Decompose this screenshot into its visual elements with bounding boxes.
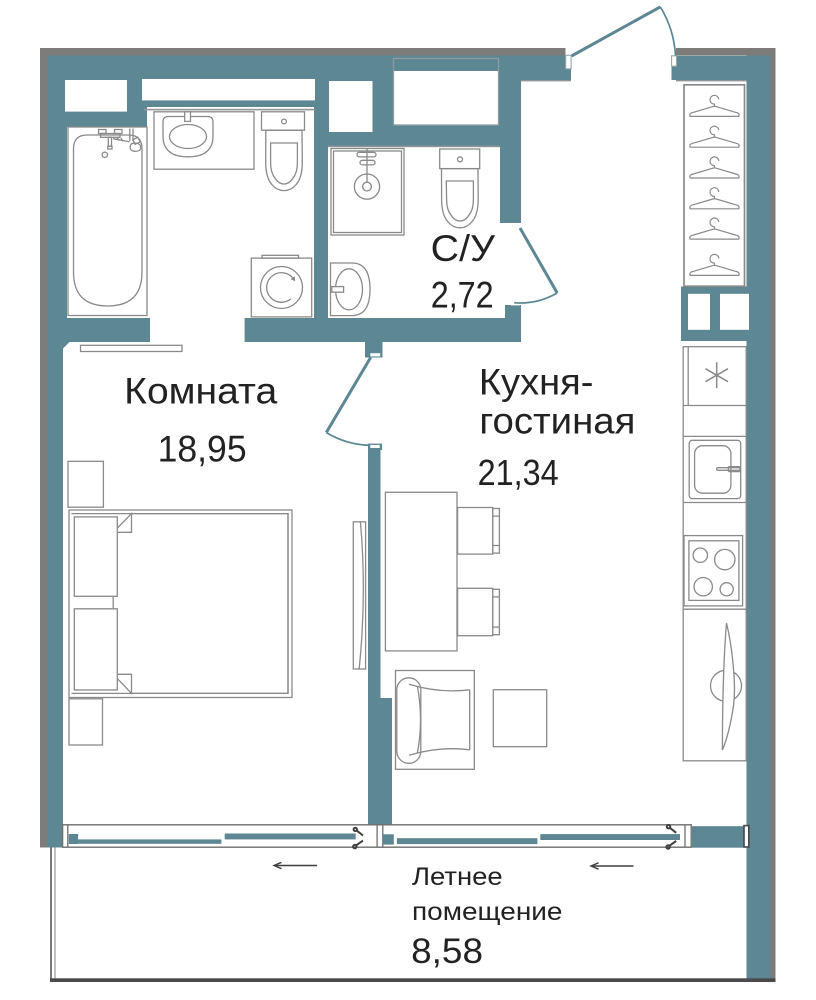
svg-text:8,58: 8,58 xyxy=(411,932,483,971)
svg-text:2,72: 2,72 xyxy=(431,274,494,316)
svg-text:С/У: С/У xyxy=(431,227,495,269)
svg-text:гостиная: гостиная xyxy=(479,400,635,442)
svg-text:Комната: Комната xyxy=(124,370,277,412)
svg-text:18,95: 18,95 xyxy=(158,428,247,470)
svg-text:21,34: 21,34 xyxy=(478,452,559,493)
svg-text:Кухня-: Кухня- xyxy=(479,361,593,403)
svg-text:помещение: помещение xyxy=(412,898,563,926)
svg-text:Летнее: Летнее xyxy=(412,863,503,891)
